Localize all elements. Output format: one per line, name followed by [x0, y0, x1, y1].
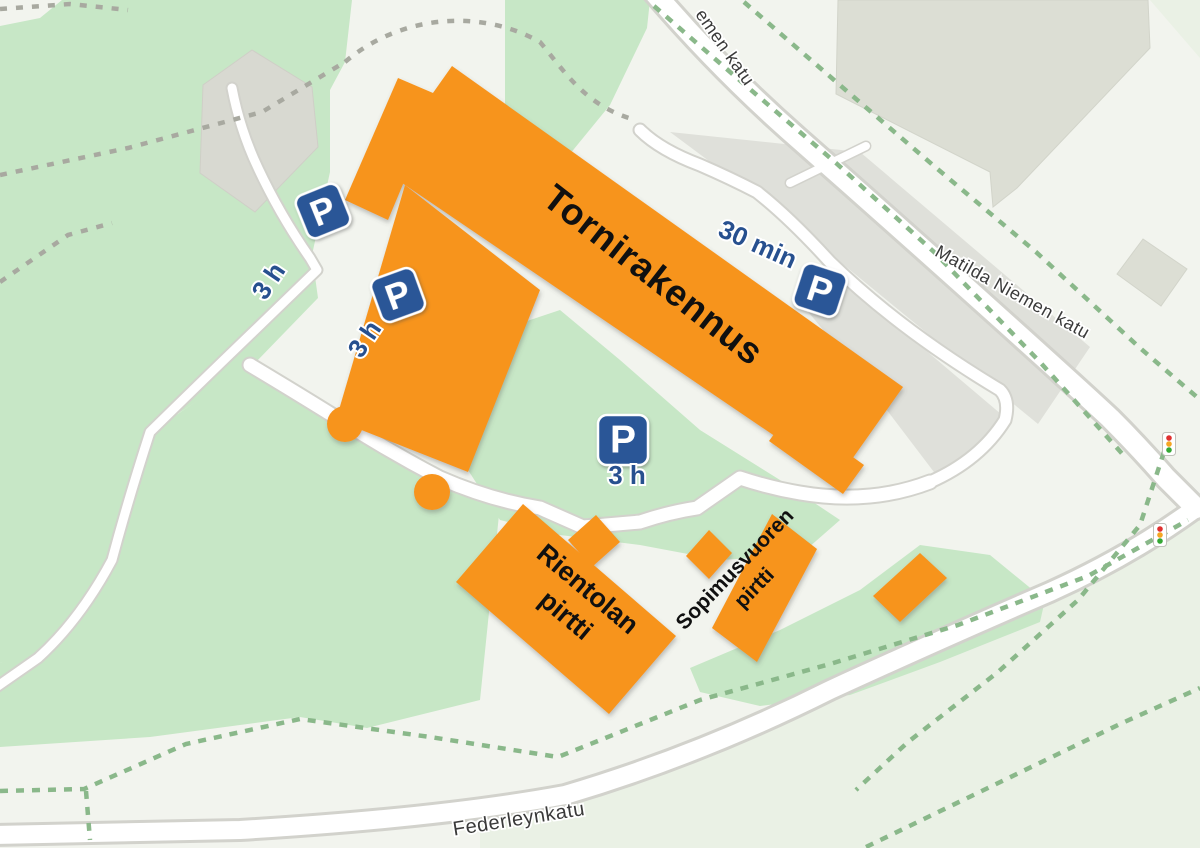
parking-icon[interactable]: P — [598, 415, 648, 465]
duration-label-courtyard: 3 h — [608, 460, 646, 490]
tornirakennus-tower-west — [327, 406, 363, 442]
traffic-light-icon — [1154, 524, 1167, 547]
map-canvas[interactable]: P P P P 3 h 3 h 30 min 3 h emen katu Mat… — [0, 0, 1200, 848]
traffic-light-icon — [1163, 433, 1176, 456]
parking-letter: P — [610, 419, 636, 462]
tornirakennus-tower-south — [414, 474, 450, 510]
map-svg[interactable]: P P P P 3 h 3 h 30 min 3 h emen katu Mat… — [0, 0, 1200, 848]
